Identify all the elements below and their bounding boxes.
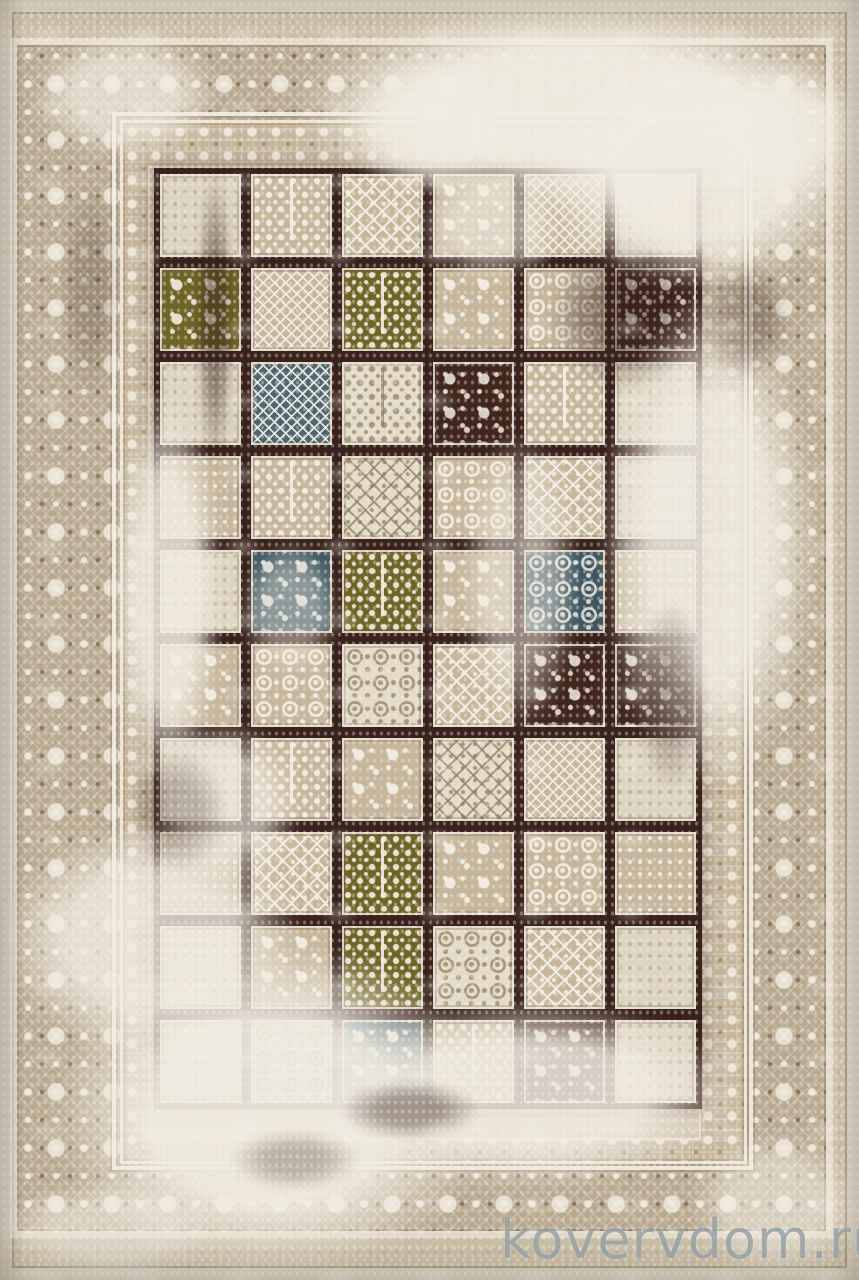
rug-tile-beige-ornate	[251, 644, 332, 727]
rug-tile-beige-diamond	[433, 644, 514, 727]
rug-tile-brown-floral	[615, 644, 696, 727]
watermark-text: kovervdom.ru	[500, 1208, 859, 1271]
rug-tile-faded-plain	[615, 174, 696, 257]
rug-tile-faded-plain	[615, 926, 696, 1009]
rug-tile-beige-floral	[433, 832, 514, 915]
rug-tile-cream-diamond	[342, 456, 423, 539]
rug-tile-faded-plain	[160, 174, 241, 257]
rug-tile-beige-floral	[433, 550, 514, 633]
rug-tile-cream-ornate	[251, 1020, 332, 1103]
tile-grid	[154, 168, 702, 1109]
rug-tile-faded-plain	[160, 362, 241, 445]
rug-tile-beige-floral	[433, 174, 514, 257]
rug-tile-beige-tree	[251, 738, 332, 821]
rug-tile-beige-floral	[160, 644, 241, 727]
rug-tile-brown-floral	[433, 362, 514, 445]
rug-tile-faded-plain	[615, 1020, 696, 1103]
rug-tile-beige-tree	[524, 362, 605, 445]
rug-tile-beige-ornate	[433, 456, 514, 539]
rug-tile-faded-plain	[615, 456, 696, 539]
rug-photo: kovervdom.ru	[0, 0, 859, 1280]
rug-tile-beige-plain	[615, 832, 696, 915]
rug-tile-olive-tree	[342, 832, 423, 915]
rug-tile-olive-tree	[342, 926, 423, 1009]
rug-tile-blue-lattice	[251, 362, 332, 445]
rug-tile-faded-plain	[160, 738, 241, 821]
rug-tile-faded-plain	[160, 550, 241, 633]
rug-tile-cream-tree	[342, 362, 423, 445]
rug-tile-beige-floral	[251, 926, 332, 1009]
rug-tile-beige-tree	[251, 456, 332, 539]
rug-tile-beige-diamond	[524, 926, 605, 1009]
rug-tile-beige-lattice	[251, 268, 332, 351]
rug-tile-blue-floral	[342, 1020, 423, 1103]
rug-tile-beige-diamond	[251, 832, 332, 915]
rug-tile-brown-floral	[524, 1020, 605, 1103]
rug-tile-beige-plain	[615, 550, 696, 633]
rug-tile-beige-diamond	[524, 456, 605, 539]
rug-tile-brown-floral	[524, 644, 605, 727]
rug-tile-beige-diamond	[342, 174, 423, 257]
rug-tile-faded-plain	[615, 738, 696, 821]
rug-tile-cream-ornate	[342, 644, 423, 727]
rug-tile-olive-tree	[342, 550, 423, 633]
rug-tile-beige-lattice	[524, 738, 605, 821]
rug-tile-olive-tree	[342, 268, 423, 351]
rug-tile-cream-diamond	[433, 738, 514, 821]
rug-tile-brown-floral	[615, 268, 696, 351]
rug-tile-beige-ornate	[524, 268, 605, 351]
rug-tile-beige-tree	[251, 174, 332, 257]
rug-tile-beige-floral	[342, 738, 423, 821]
rug-tile-beige-plain	[160, 832, 241, 915]
rug-tile-bluedark-ornate	[524, 550, 605, 633]
rug-tile-faded-plain	[160, 1020, 241, 1103]
rug-tile-faded-plain	[615, 362, 696, 445]
rug-tile-faded-plain	[160, 926, 241, 1009]
rug-tile-olive-floral	[160, 268, 241, 351]
rug-tile-beige-plain	[160, 456, 241, 539]
rug-tile-beige-floral	[433, 268, 514, 351]
rug-tile-beige-tree	[433, 1020, 514, 1103]
rug-tile-bluedark-floral	[251, 550, 332, 633]
rug-tile-beige-ornate	[524, 832, 605, 915]
rug-tile-beige-lattice	[524, 174, 605, 257]
rug-tile-cream-ornate	[433, 926, 514, 1009]
